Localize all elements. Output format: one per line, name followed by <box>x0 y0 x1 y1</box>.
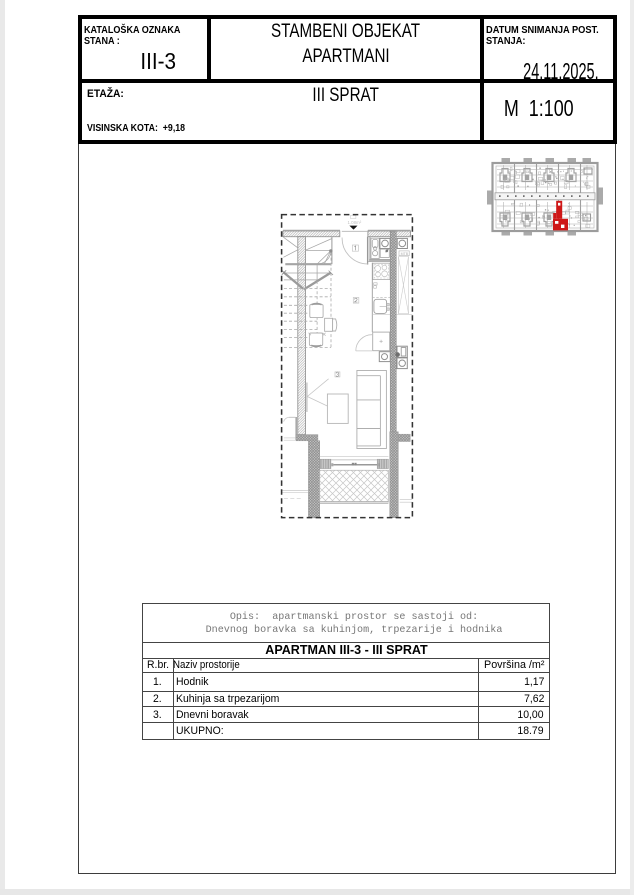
svg-text:MTB: MTB <box>401 252 409 256</box>
svg-text:1.08m²: 1.08m² <box>348 220 362 225</box>
